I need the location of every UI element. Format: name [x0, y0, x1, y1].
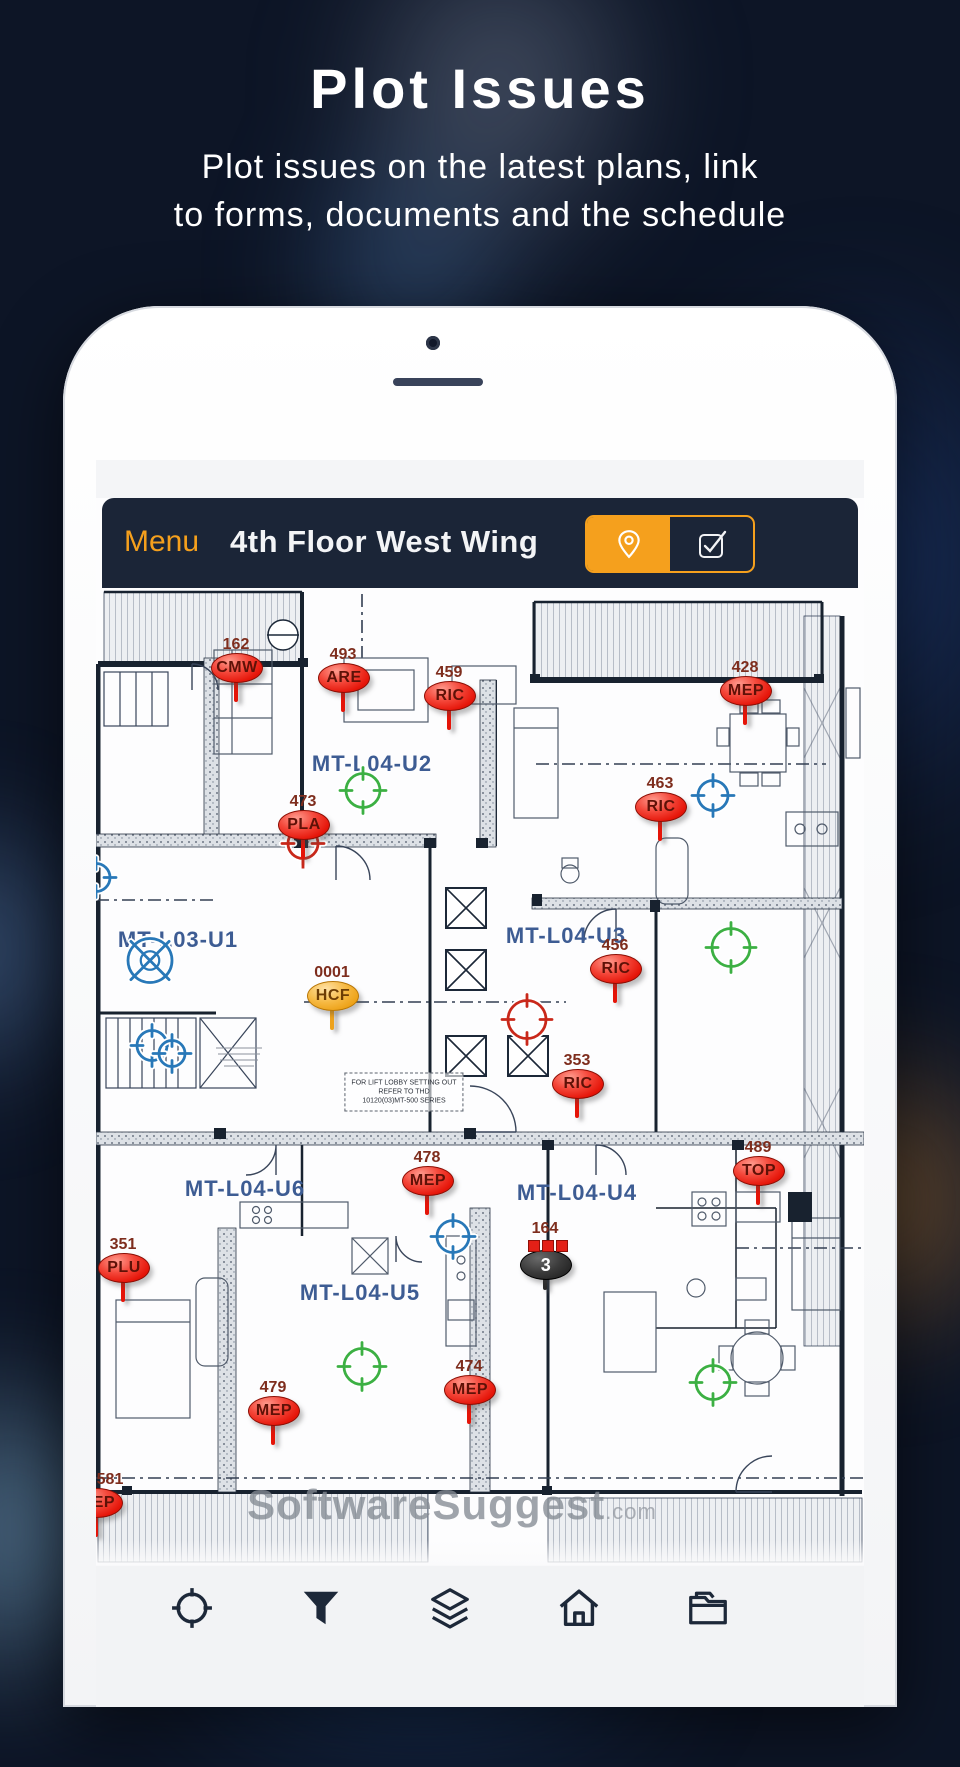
- layers-button[interactable]: [426, 1584, 474, 1632]
- layers-icon: [427, 1585, 473, 1631]
- earpiece-speaker: [393, 378, 483, 386]
- subtitle-line-2: to forms, documents and the schedule: [0, 191, 960, 239]
- locate-target-icon: [169, 1585, 215, 1631]
- floorplan-canvas[interactable]: [96, 588, 864, 1565]
- documents-folder-icon: [685, 1585, 731, 1631]
- locate-target-button[interactable]: [168, 1584, 216, 1632]
- checkbox-icon: [695, 527, 729, 561]
- toggle-checklist-segment[interactable]: [670, 517, 753, 571]
- home-button[interactable]: [555, 1584, 603, 1632]
- pin-checklist-toggle[interactable]: [585, 515, 755, 573]
- documents-button[interactable]: [684, 1584, 732, 1632]
- floorplan-drawing: [96, 588, 864, 1565]
- hero-text: Plot Issues Plot issues on the latest pl…: [0, 0, 960, 239]
- menu-button[interactable]: Menu: [124, 525, 199, 559]
- toggle-pins-segment[interactable]: [587, 517, 670, 571]
- floor-title: 4th Floor West Wing: [230, 524, 538, 560]
- front-camera: [426, 336, 440, 350]
- app-screen: Menu 4th Floor West Wing: [96, 460, 864, 1707]
- page-subtitle: Plot issues on the latest plans, link to…: [0, 143, 960, 239]
- location-pin-icon: [616, 529, 642, 559]
- filter-button[interactable]: [297, 1584, 345, 1632]
- app-header: Menu 4th Floor West Wing: [102, 498, 858, 588]
- page-title: Plot Issues: [0, 56, 960, 121]
- subtitle-line-1: Plot issues on the latest plans, link: [0, 143, 960, 191]
- home-icon: [556, 1585, 602, 1631]
- status-bar: [96, 460, 864, 498]
- bottom-toolbar: [96, 1565, 864, 1707]
- filter-funnel-icon: [298, 1585, 344, 1631]
